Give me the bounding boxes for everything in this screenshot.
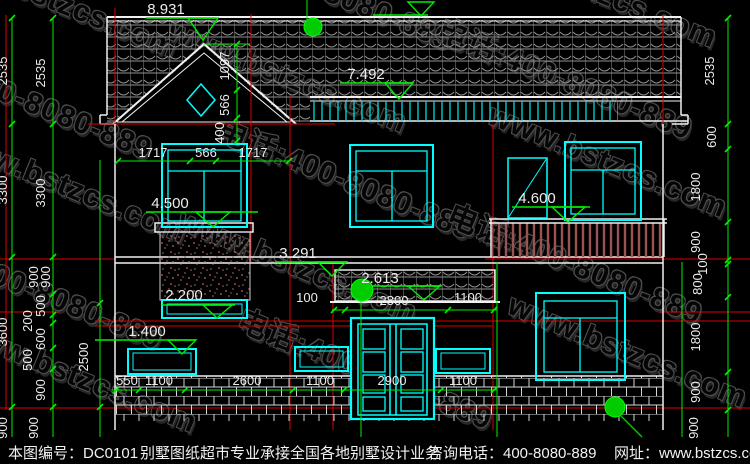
ground-window-mid-left xyxy=(295,347,348,371)
level-attic-left: 4.500 xyxy=(151,195,189,212)
shrub-icon xyxy=(605,397,625,417)
ground-window-left xyxy=(128,349,196,374)
dim-ground-2: 2600 xyxy=(233,373,262,388)
dim-right-3: 900 xyxy=(688,231,703,253)
dim-right-1: 600 xyxy=(704,126,719,148)
status-bar: 本图编号：DC0101 别墅图纸超市专业承接全国各地别墅设计业务 咨询电话：40… xyxy=(0,440,750,464)
dim-left-inner-8: 900 xyxy=(33,379,48,401)
dim-left-outer-1: 3300 xyxy=(0,176,10,205)
dim-left-outer-0: 2535 xyxy=(0,57,10,86)
dim-gable-1: 566 xyxy=(217,94,232,116)
level-eaves: 7.492 xyxy=(347,66,385,83)
dim-left-inner-1: 3300 xyxy=(33,179,48,208)
attic-casement-window xyxy=(508,158,547,218)
level-canopy: 1.400 xyxy=(128,323,166,340)
roof-deck-railing xyxy=(312,101,618,121)
level-attic-right: 4.600 xyxy=(518,190,556,207)
attic-right-door xyxy=(565,142,641,220)
dim-ground-0: 550 xyxy=(116,373,138,388)
dim-gable-2: 400 xyxy=(212,122,227,144)
dim-left-inner-0: 2535 xyxy=(33,59,48,88)
dim-right-2: 1800 xyxy=(688,173,703,202)
level-porch: 2.613 xyxy=(361,270,399,287)
dim-right-8: 900 xyxy=(686,417,701,439)
balcony-railing xyxy=(489,219,667,257)
drawing-number-label: 本图编号：DC0101 xyxy=(8,442,138,463)
entrance-door xyxy=(351,318,434,419)
dim-left-inner-3: 900 xyxy=(38,266,53,288)
dim-ground-3: 1100 xyxy=(306,373,334,388)
dim-attic-0: 1717 xyxy=(139,145,168,160)
level-ridge: 8.931 xyxy=(147,1,185,18)
dim-right-5: 800 xyxy=(690,273,705,295)
tree-icon xyxy=(304,18,322,36)
dim-right-7: 900 xyxy=(688,381,703,403)
website-label: 网址：www.bstzcs.com xyxy=(614,442,750,463)
dim-porch-1: 2800 xyxy=(380,293,409,308)
stair-window xyxy=(536,293,625,380)
dim-attic-2: 1717 xyxy=(239,145,268,160)
dim-attic-1: 566 xyxy=(195,145,217,160)
service-label: 别墅图纸超市专业承接全国各地别墅设计业务 xyxy=(140,442,440,463)
cad-viewer-window: www.bstzcs.com 电话:400-8080-889 www.bstzc… xyxy=(0,0,750,464)
dim-porch-0: 100 xyxy=(296,290,318,305)
dim-left-aux: 2500 xyxy=(76,343,91,372)
dim-left-inner-9: 900 xyxy=(26,417,41,439)
roof xyxy=(100,17,688,124)
dim-ground-1: 1100 xyxy=(145,373,173,388)
dim-ground-4: 2900 xyxy=(378,373,407,388)
dim-left-outer-2: 3600 xyxy=(0,318,10,347)
dim-left-inner-4: 500 xyxy=(33,295,48,317)
level-floor2: 3.291 xyxy=(279,245,317,262)
phone-label: 咨询电话：400-8080-889 xyxy=(428,442,596,463)
attic-mid-window xyxy=(350,145,433,227)
dim-right-4: 100 xyxy=(695,253,710,275)
elevation-drawing: 8.931 7.492 4.500 4.600 3.291 2.613 2.20… xyxy=(0,0,750,440)
dim-left-inner-6: 600 xyxy=(33,328,48,350)
dim-ground-5: 1100 xyxy=(449,373,477,388)
ground-window-mid-right xyxy=(436,349,490,373)
dim-right-6: 1800 xyxy=(688,323,703,352)
level-stone-top: 2.200 xyxy=(165,287,203,304)
dim-gable-0: 1097 xyxy=(217,52,232,81)
drawing-canvas[interactable]: www.bstzcs.com 电话:400-8080-889 www.bstzc… xyxy=(0,0,750,440)
dim-left-inner-7: 500 xyxy=(20,349,35,371)
dim-right-0: 2535 xyxy=(702,57,717,86)
dim-porch-2: 1100 xyxy=(454,290,482,305)
dim-left-outer-3: 900 xyxy=(0,417,10,439)
